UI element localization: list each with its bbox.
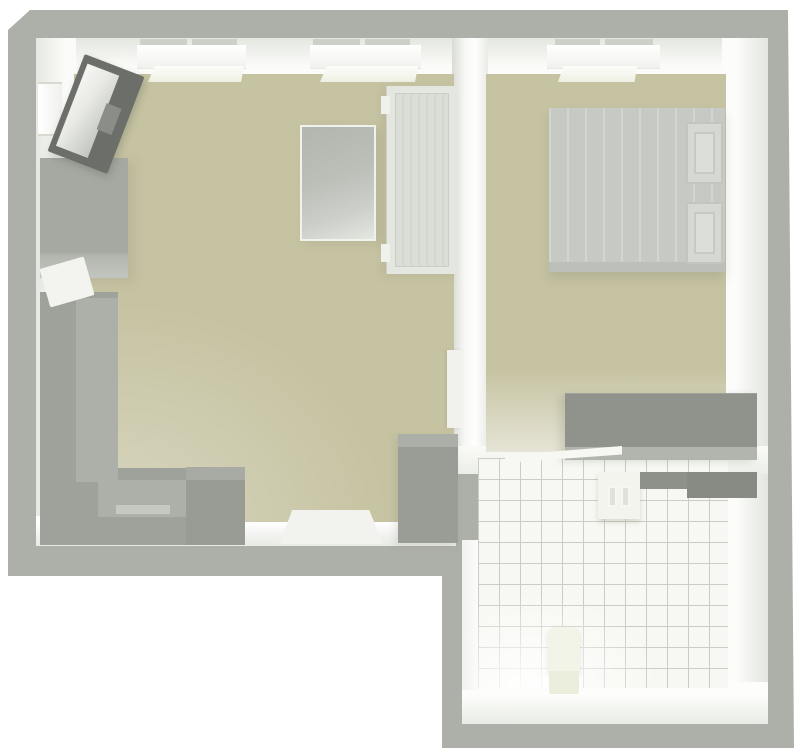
- toilet-bowl: [548, 627, 580, 673]
- coffee-table[interactable]: [300, 125, 376, 241]
- window-1[interactable]: [137, 45, 246, 69]
- corner-sofa-seat-edge: [116, 505, 170, 514]
- wardrobe[interactable]: [386, 86, 457, 274]
- countertop-right-section[interactable]: [687, 472, 757, 498]
- corner-sofa-armrest-top: [186, 467, 245, 480]
- wall-face-bathroom-bottom: [462, 682, 768, 724]
- window-2-sill: [320, 66, 418, 82]
- pillow-right: [686, 202, 723, 264]
- toilet-tank: [549, 671, 579, 694]
- wardrobe-hinge-bottom: [381, 244, 390, 262]
- window-2[interactable]: [310, 45, 421, 69]
- window-1-sill: [148, 66, 244, 82]
- pillow-left-inner: [694, 132, 715, 174]
- pillow-left: [686, 122, 723, 184]
- corner-sofa-armrest: [186, 467, 245, 545]
- corner-sofa-left-seat: [76, 298, 118, 482]
- toilet[interactable]: [548, 627, 580, 694]
- storage-cabinet[interactable]: [398, 434, 458, 543]
- floorplan-scene: [0, 0, 800, 753]
- pillow-right-inner: [694, 212, 715, 254]
- window-3[interactable]: [547, 45, 660, 69]
- storage-cabinet-top: [398, 434, 458, 447]
- double-bed[interactable]: [549, 108, 725, 272]
- faucet-handle-right: [621, 486, 630, 507]
- window-3-sill: [558, 66, 637, 82]
- wall-sink[interactable]: [598, 472, 640, 519]
- wardrobe-door-panel: [395, 93, 449, 267]
- wardrobe-hinge-top: [381, 96, 390, 114]
- wall-face-right: [722, 38, 768, 724]
- faucet-handle-left: [608, 486, 617, 507]
- living-room-door-panel[interactable]: [447, 350, 462, 428]
